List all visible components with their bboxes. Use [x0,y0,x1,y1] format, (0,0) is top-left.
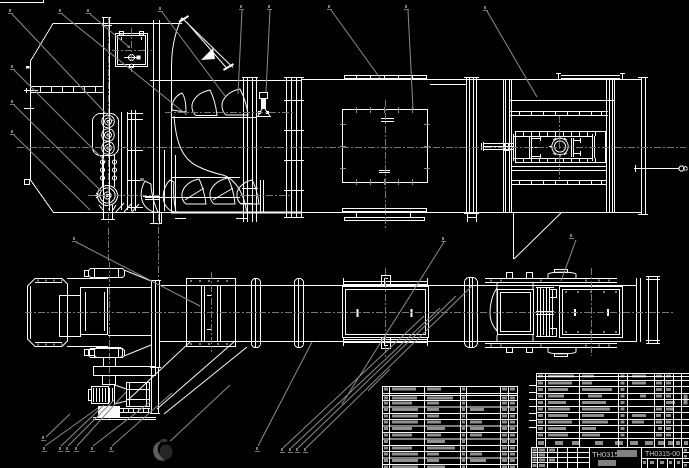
svg-text:TH0315-00: TH0315-00 [645,451,680,458]
svg-text:TH0315: TH0315 [592,450,619,459]
